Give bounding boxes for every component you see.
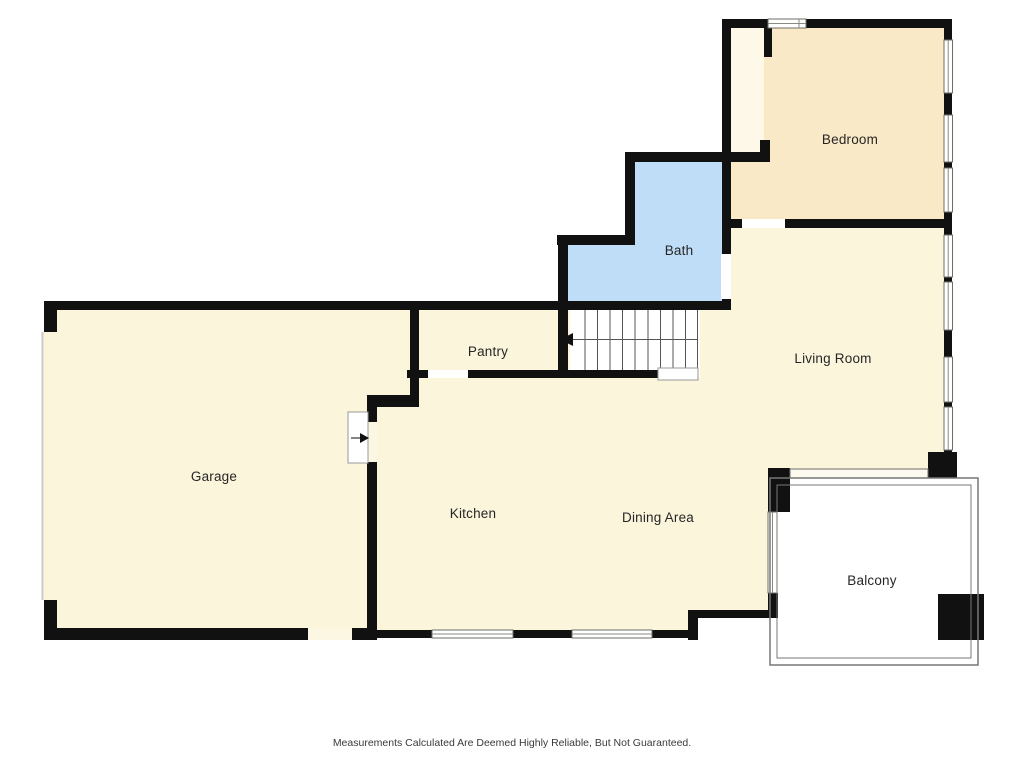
room-living-lower [700, 310, 944, 478]
window [944, 357, 953, 402]
window [944, 40, 953, 93]
pantry-door-opening [428, 370, 468, 378]
window [572, 630, 652, 638]
garage-rear-opening [308, 628, 352, 640]
balcony-block [938, 594, 984, 640]
stair-landing [658, 368, 698, 380]
label-bedroom: Bedroom [822, 132, 878, 147]
window [944, 282, 953, 330]
label-kitchen: Kitchen [450, 506, 496, 521]
floor-plan-svg: Bedroom Bath Living Room Pantry Garage K… [0, 0, 1024, 768]
window [944, 235, 953, 277]
bedroom-closet [731, 28, 764, 152]
label-living: Living Room [794, 351, 871, 366]
sliding-door [790, 469, 928, 478]
window [768, 19, 806, 28]
garage-entry-door [348, 412, 369, 463]
label-bath: Bath [665, 243, 694, 258]
bath-door-opening [721, 254, 731, 299]
window [944, 168, 953, 212]
label-balcony: Balcony [847, 573, 896, 588]
floor-fills [44, 28, 978, 665]
window [944, 115, 953, 162]
window [944, 407, 953, 450]
label-dining: Dining Area [622, 510, 694, 525]
bedroom-door-opening [742, 219, 785, 228]
window [432, 630, 513, 638]
disclaimer-text: Measurements Calculated Are Deemed Highl… [333, 737, 691, 749]
room-bath [567, 162, 723, 302]
label-garage: Garage [191, 469, 237, 484]
label-pantry: Pantry [468, 344, 508, 359]
floor-plan-image: Bedroom Bath Living Room Pantry Garage K… [0, 0, 1024, 768]
room-living-upper [731, 228, 944, 310]
